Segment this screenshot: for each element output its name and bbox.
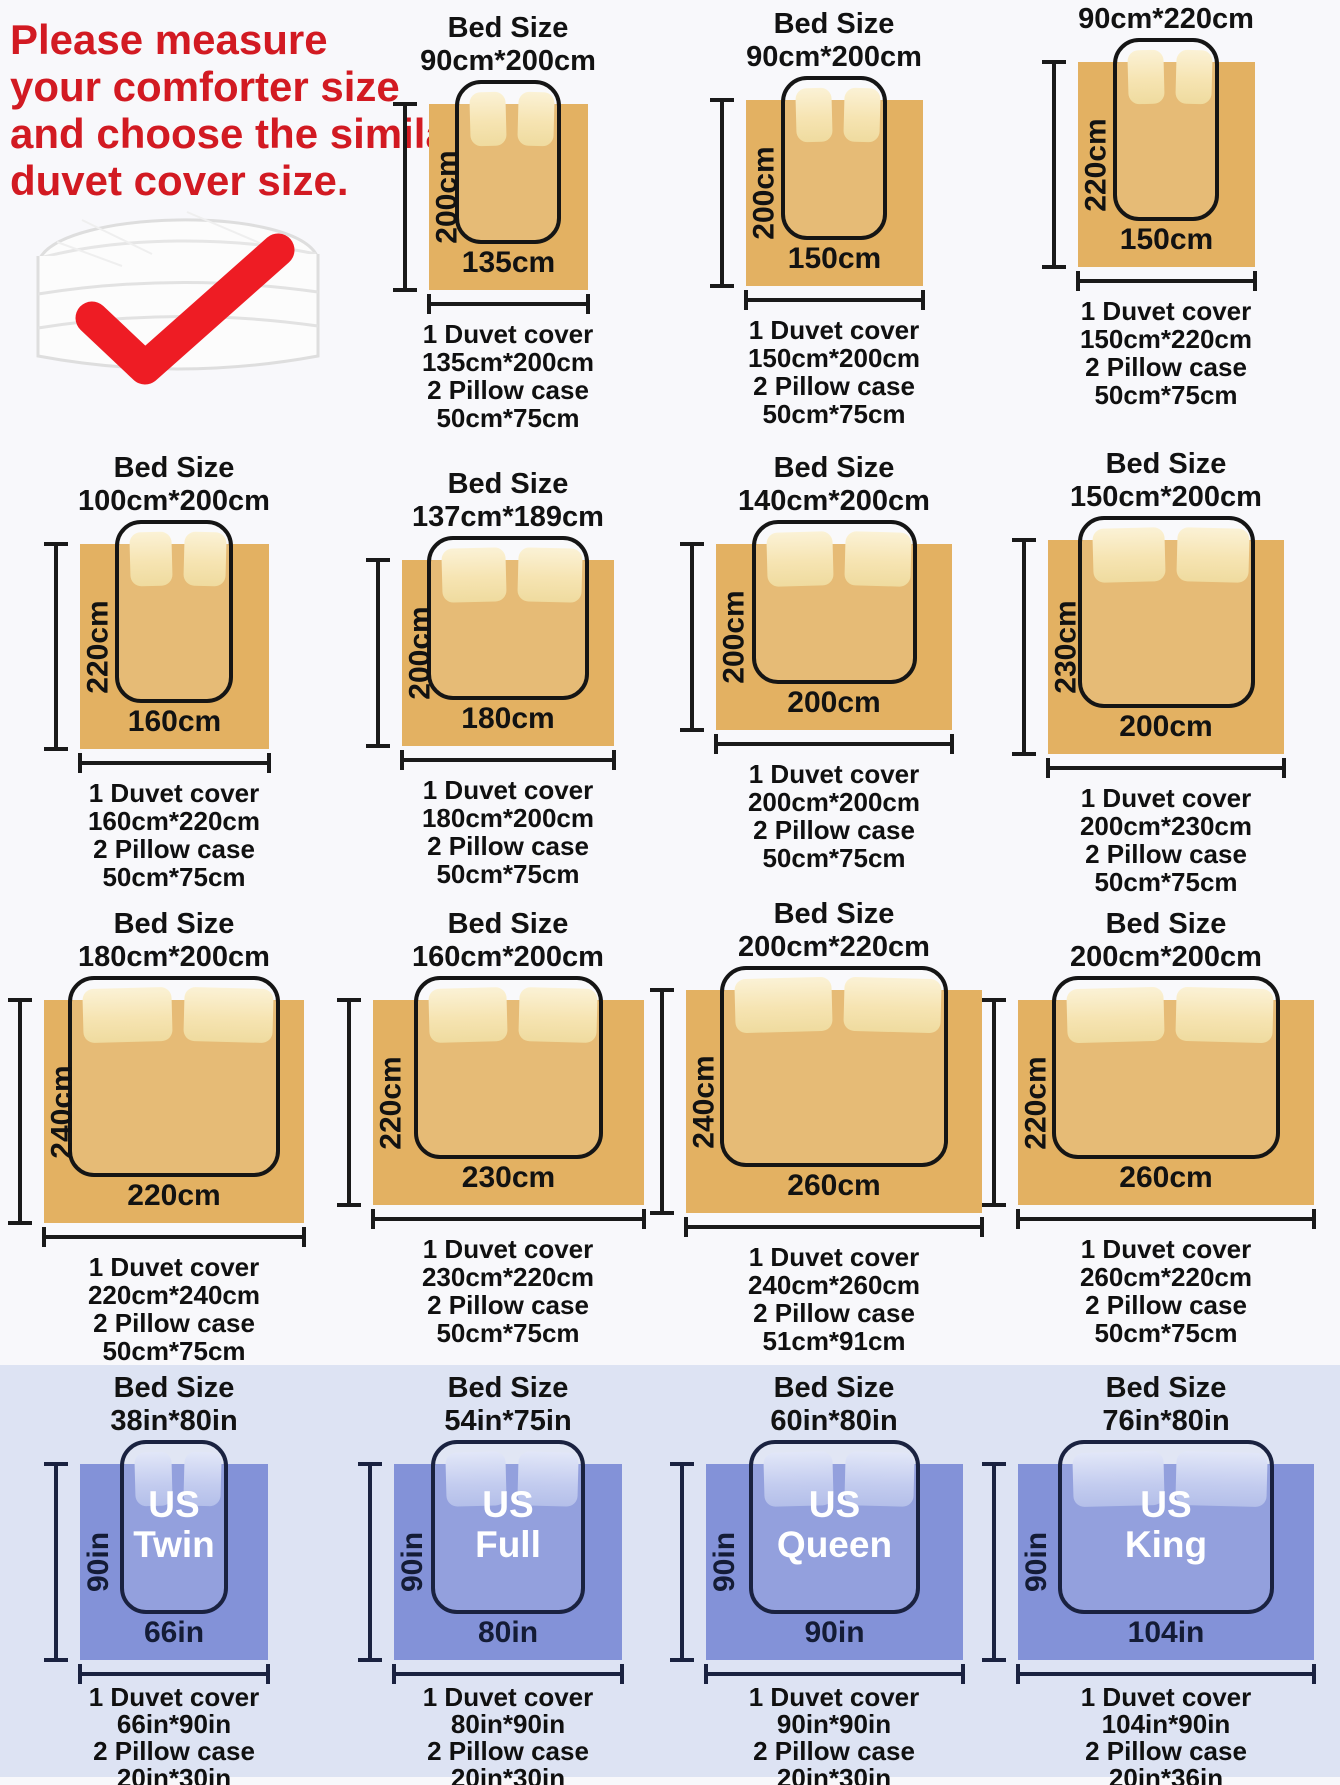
bed-size-title: Bed Size xyxy=(336,1372,680,1405)
description-line: 20in*30in xyxy=(2,1765,346,1785)
measure-cap xyxy=(680,728,704,732)
measure-cap xyxy=(8,998,32,1002)
pillow-icon xyxy=(428,987,507,1043)
description-line: 1 Duvet cover xyxy=(2,1253,346,1281)
height-measure-line xyxy=(1022,540,1026,754)
measure-cap xyxy=(366,744,390,748)
width-label: 135cm xyxy=(429,246,588,280)
bed-size-label: Bed Size38in*80in xyxy=(2,1372,346,1438)
height-measure-line xyxy=(18,1000,22,1223)
measure-cap xyxy=(1012,752,1036,756)
size-card-duvet-260x220: Bed Size200cm*200cm220cm260cm1 Duvet cov… xyxy=(994,908,1338,1365)
description-line: 1 Duvet cover xyxy=(994,1235,1338,1263)
description-line: 50cm*75cm xyxy=(2,1337,346,1365)
width-label: 90in xyxy=(706,1616,963,1650)
measure-cap xyxy=(650,1211,674,1215)
description-line: 50cm*75cm xyxy=(662,400,1006,428)
size-card-duvet-180x200: Bed Size137cm*189cm200cm180cm1 Duvet cov… xyxy=(336,468,680,906)
us-size-line: King xyxy=(1058,1525,1274,1565)
bed-size-title: Bed Size xyxy=(662,898,1006,931)
bed-outline xyxy=(1113,38,1219,221)
bed-outline xyxy=(68,976,280,1177)
description-line: 20in*30in xyxy=(662,1765,1006,1785)
width-measure-line xyxy=(427,302,590,306)
pillow-icon xyxy=(517,92,554,147)
width-measure-line xyxy=(1076,279,1257,283)
description-line: 66in*90in xyxy=(2,1711,346,1738)
bed-size-label: Bed Size76in*80in xyxy=(994,1372,1338,1438)
bed-outline xyxy=(781,76,887,240)
width-measure-line xyxy=(1016,1217,1316,1221)
duvet-description: 1 Duvet cover220cm*240cm2 Pillow case50c… xyxy=(2,1253,346,1365)
size-card-us-king: Bed Size76in*80inUSKing90in104in1 Duvet … xyxy=(994,1372,1338,1785)
width-label: 66in xyxy=(80,1616,268,1650)
bed-size-value: 200cm*200cm xyxy=(994,941,1338,974)
duvet-description: 1 Duvet cover230cm*220cm2 Pillow case50c… xyxy=(336,1235,680,1347)
bed-size-value: 90cm*220cm xyxy=(994,3,1338,36)
description-line: 1 Duvet cover xyxy=(994,784,1338,812)
us-size-line: US xyxy=(1058,1485,1274,1525)
measure-cap xyxy=(620,1664,624,1684)
duvet-description: 1 Duvet cover160cm*220cm2 Pillow case50c… xyxy=(2,779,346,891)
width-measure-line xyxy=(1016,1672,1316,1676)
measure-cap xyxy=(8,1221,32,1225)
description-line: 260cm*220cm xyxy=(994,1263,1338,1291)
bed-size-label: Bed Size100cm*200cm xyxy=(2,452,346,518)
height-measure-line xyxy=(368,1464,372,1660)
width-measure-line xyxy=(371,1217,646,1221)
bed-size-value: 54in*75in xyxy=(336,1405,680,1438)
measure-cap xyxy=(1282,758,1286,778)
bed-size-title: Bed Size xyxy=(2,908,346,941)
measure-cap xyxy=(392,1664,396,1684)
description-line: 50cm*75cm xyxy=(994,868,1338,896)
size-card-duvet-200x230: Bed Size150cm*200cm230cm200cm1 Duvet cov… xyxy=(994,448,1338,914)
us-size-line: US xyxy=(431,1485,585,1525)
height-measure-line xyxy=(347,1000,351,1205)
measure-cap xyxy=(1042,60,1066,64)
measure-cap xyxy=(612,750,616,770)
measure-cap xyxy=(704,1664,708,1684)
height-label-text: 220cm xyxy=(1020,1056,1054,1149)
bed-outline xyxy=(1052,976,1280,1159)
measure-cap xyxy=(42,1227,46,1247)
measure-cap xyxy=(714,734,718,754)
duvet-description: 1 Duvet cover150cm*220cm2 Pillow case50c… xyxy=(994,297,1338,409)
pillow-icon xyxy=(469,92,506,147)
size-card-duvet-160x220: Bed Size100cm*200cm220cm160cm1 Duvet cov… xyxy=(2,452,346,909)
measure-cap xyxy=(642,1209,646,1229)
description-line: 50cm*75cm xyxy=(336,860,680,888)
duvet-description: 1 Duvet cover104in*90in2 Pillow case20in… xyxy=(994,1684,1338,1785)
bed-outline xyxy=(752,520,917,684)
height-measure-line xyxy=(992,1000,996,1205)
bed-size-label: Bed Size90cm*200cm xyxy=(336,12,680,78)
bed-size-title: Bed Size xyxy=(994,908,1338,941)
description-line: 50cm*75cm xyxy=(2,863,346,891)
description-line: 1 Duvet cover xyxy=(662,316,1006,344)
description-line: 1 Duvet cover xyxy=(994,1684,1338,1711)
bed-size-title: Bed Size xyxy=(994,1372,1338,1405)
duvet-description: 1 Duvet cover150cm*200cm2 Pillow case50c… xyxy=(662,316,1006,428)
description-line: 1 Duvet cover xyxy=(2,1684,346,1711)
width-measure-line xyxy=(744,298,925,302)
description-line: 2 Pillow case xyxy=(336,832,680,860)
measure-cap xyxy=(980,1217,984,1237)
description-line: 2 Pillow case xyxy=(2,835,346,863)
measure-cap xyxy=(1312,1664,1316,1684)
description-line: 2 Pillow case xyxy=(662,816,1006,844)
us-size-name: USTwin xyxy=(120,1485,228,1565)
pillow-icon xyxy=(441,547,506,603)
measure-cap xyxy=(982,1203,1006,1207)
size-card-duvet-150x220: Bed Size90cm*220cm220cm150cm1 Duvet cove… xyxy=(994,0,1338,427)
height-measure-line xyxy=(54,1464,58,1660)
size-card-duvet-135x200: Bed Size90cm*200cm200cm135cm1 Duvet cove… xyxy=(336,12,680,450)
description-line: 2 Pillow case xyxy=(2,1309,346,1337)
description-line: 104in*90in xyxy=(994,1711,1338,1738)
height-label-text: 240cm xyxy=(688,1055,722,1148)
pillow-icon xyxy=(129,531,172,586)
duvet-description: 1 Duvet cover66in*90in2 Pillow case20in*… xyxy=(2,1684,346,1785)
height-measure-line xyxy=(720,100,724,286)
measure-cap xyxy=(670,1658,694,1662)
description-line: 50cm*75cm xyxy=(994,381,1338,409)
description-line: 2 Pillow case xyxy=(994,353,1338,381)
height-measure-line xyxy=(992,1464,996,1660)
width-label: 180cm xyxy=(402,702,614,736)
measure-cap xyxy=(44,1462,68,1466)
pillow-icon xyxy=(1127,50,1164,105)
bed-outline xyxy=(414,976,603,1159)
us-size-line: Queen xyxy=(749,1525,920,1565)
pillow-icon xyxy=(82,987,172,1043)
description-line: 150cm*200cm xyxy=(662,344,1006,372)
description-line: 50cm*75cm xyxy=(994,1319,1338,1347)
us-size-line: Twin xyxy=(120,1525,228,1565)
measure-cap xyxy=(267,753,271,773)
measure-cap xyxy=(1012,538,1036,542)
bed-size-value: 100cm*200cm xyxy=(2,485,346,518)
pillow-icon xyxy=(843,977,941,1034)
measure-cap xyxy=(982,1462,1006,1466)
height-label-text: 200cm xyxy=(404,606,438,699)
measure-cap xyxy=(44,747,68,751)
description-line: 2 Pillow case xyxy=(994,1738,1338,1765)
bed-size-label: Bed Size160cm*200cm xyxy=(336,908,680,974)
measure-cap xyxy=(1016,1209,1020,1229)
us-size-line: Full xyxy=(431,1525,585,1565)
us-size-line: US xyxy=(749,1485,920,1525)
height-measure-line xyxy=(680,1464,684,1660)
width-measure-line xyxy=(704,1672,965,1676)
measure-cap xyxy=(1016,1664,1020,1684)
description-line: 1 Duvet cover xyxy=(336,320,680,348)
description-line: 20in*36in xyxy=(994,1765,1338,1785)
pillow-icon xyxy=(795,88,832,143)
measure-cap xyxy=(1253,271,1257,291)
width-measure-line xyxy=(42,1235,306,1239)
bed-size-value: 90cm*200cm xyxy=(662,41,1006,74)
us-size-name: USKing xyxy=(1058,1485,1274,1565)
size-card-us-full: Bed Size54in*75inUSFull90in80in1 Duvet c… xyxy=(336,1372,680,1785)
bed-outline xyxy=(720,966,948,1167)
measure-cap xyxy=(427,294,431,314)
bed-size-value: 137cm*189cm xyxy=(336,501,680,534)
bed-size-label: Bed Size200cm*200cm xyxy=(994,908,1338,974)
description-line: 2 Pillow case xyxy=(336,376,680,404)
bed-size-label: Bed Size137cm*189cm xyxy=(336,468,680,534)
bed-size-title: Bed Size xyxy=(336,12,680,45)
description-line: 80in*90in xyxy=(336,1711,680,1738)
measure-cap xyxy=(366,558,390,562)
width-measure-line xyxy=(684,1225,984,1229)
measure-cap xyxy=(400,750,404,770)
measure-cap xyxy=(266,1664,270,1684)
pillow-icon xyxy=(1066,987,1164,1044)
height-label-text: 220cm xyxy=(1080,118,1114,211)
measure-cap xyxy=(710,284,734,288)
bed-size-title: Bed Size xyxy=(2,452,346,485)
size-card-us-twin: Bed Size38in*80inUSTwin90in66in1 Duvet c… xyxy=(2,1372,346,1785)
pillow-icon xyxy=(734,977,832,1034)
measure-cap xyxy=(393,102,417,106)
pillow-icon xyxy=(1175,987,1273,1044)
measure-cap xyxy=(302,1227,306,1247)
bed-outline xyxy=(455,80,561,244)
measure-cap xyxy=(393,288,417,292)
height-measure-line xyxy=(54,544,58,749)
width-label: 200cm xyxy=(716,686,952,720)
pillow-icon xyxy=(1175,50,1212,105)
measure-cap xyxy=(650,988,674,992)
pillow-icon xyxy=(517,547,582,603)
bed-size-title: Bed Size xyxy=(2,1372,346,1405)
measure-cap xyxy=(78,1664,82,1684)
width-label: 260cm xyxy=(1018,1161,1314,1195)
measure-cap xyxy=(680,542,704,546)
bed-size-label: Bed Size150cm*200cm xyxy=(994,448,1338,514)
bed-size-title: Bed Size xyxy=(336,908,680,941)
pillow-icon xyxy=(183,987,273,1043)
description-line: 180cm*200cm xyxy=(336,804,680,832)
measure-cap xyxy=(358,1658,382,1662)
bed-size-label: Bed Size90cm*200cm xyxy=(662,8,1006,74)
size-card-duvet-220x240: Bed Size180cm*200cm240cm220cm1 Duvet cov… xyxy=(2,908,346,1383)
description-line: 90in*90in xyxy=(662,1711,1006,1738)
measure-cap xyxy=(921,290,925,310)
size-card-duvet-150x200: Bed Size90cm*200cm200cm150cm1 Duvet cove… xyxy=(662,8,1006,446)
bed-size-value: 160cm*200cm xyxy=(336,941,680,974)
height-measure-line xyxy=(376,560,380,746)
bed-outline xyxy=(115,520,233,703)
measure-cap xyxy=(1046,758,1050,778)
description-line: 2 Pillow case xyxy=(994,1291,1338,1319)
duvet-description: 1 Duvet cover135cm*200cm2 Pillow case50c… xyxy=(336,320,680,432)
pillow-icon xyxy=(844,531,911,587)
size-card-us-queen: Bed Size60in*80inUSQueen90in90in1 Duvet … xyxy=(662,1372,1006,1785)
height-label-text: 230cm xyxy=(1050,600,1084,693)
width-label: 160cm xyxy=(80,705,269,739)
bed-size-value: 180cm*200cm xyxy=(2,941,346,974)
width-label: 104in xyxy=(1018,1616,1314,1650)
description-line: 200cm*200cm xyxy=(662,788,1006,816)
width-label: 220cm xyxy=(44,1179,304,1213)
description-line: 2 Pillow case xyxy=(336,1738,680,1765)
bed-size-value: 76in*80in xyxy=(994,1405,1338,1438)
height-label-text: 220cm xyxy=(82,600,116,693)
description-line: 2 Pillow case xyxy=(662,372,1006,400)
duvet-description: 1 Duvet cover180cm*200cm2 Pillow case50c… xyxy=(336,776,680,888)
measure-cap xyxy=(358,1462,382,1466)
width-measure-line xyxy=(392,1672,624,1676)
measure-cap xyxy=(982,1658,1006,1662)
bed-size-value: 140cm*200cm xyxy=(662,485,1006,518)
measure-cap xyxy=(950,734,954,754)
description-line: 240cm*260cm xyxy=(662,1271,1006,1299)
bed-size-title: Bed Size xyxy=(662,8,1006,41)
description-line: 1 Duvet cover xyxy=(662,1243,1006,1271)
pillow-icon xyxy=(183,531,226,586)
bed-size-label: Bed Size200cm*220cm xyxy=(662,898,1006,964)
width-label: 80in xyxy=(394,1616,622,1650)
measure-cap xyxy=(44,542,68,546)
description-line: 50cm*75cm xyxy=(662,844,1006,872)
description-line: 200cm*230cm xyxy=(994,812,1338,840)
measure-cap xyxy=(337,998,361,1002)
size-card-duvet-200x200: Bed Size140cm*200cm200cm200cm1 Duvet cov… xyxy=(662,452,1006,890)
description-line: 220cm*240cm xyxy=(2,1281,346,1309)
bed-size-title: Bed Size xyxy=(662,452,1006,485)
pillow-icon xyxy=(1176,527,1249,583)
bed-size-value: 60in*80in xyxy=(662,1405,1006,1438)
description-line: 51cm*91cm xyxy=(662,1327,1006,1355)
height-measure-line xyxy=(1052,62,1056,267)
height-label-text: 200cm xyxy=(718,590,752,683)
size-card-duvet-240x260: Bed Size200cm*220cm240cm260cm1 Duvet cov… xyxy=(662,898,1006,1373)
height-label-text: 90in xyxy=(82,1532,116,1592)
description-line: 2 Pillow case xyxy=(994,840,1338,868)
pillow-icon xyxy=(766,531,833,587)
measure-cap xyxy=(1312,1209,1316,1229)
height-label-text: 220cm xyxy=(375,1056,409,1149)
duvet-description: 1 Duvet cover260cm*220cm2 Pillow case50c… xyxy=(994,1235,1338,1347)
bed-size-label: Bed Size140cm*200cm xyxy=(662,452,1006,518)
description-line: 2 Pillow case xyxy=(336,1291,680,1319)
pillow-icon xyxy=(843,88,880,143)
description-line: 2 Pillow case xyxy=(2,1738,346,1765)
description-line: 2 Pillow case xyxy=(662,1299,1006,1327)
comforter-image xyxy=(12,196,342,401)
description-line: 20in*30in xyxy=(336,1765,680,1785)
description-line: 2 Pillow case xyxy=(662,1738,1006,1765)
measure-cap xyxy=(371,1209,375,1229)
us-size-name: USQueen xyxy=(749,1485,920,1565)
measure-cap xyxy=(670,1462,694,1466)
bed-size-label: Bed Size180cm*200cm xyxy=(2,908,346,974)
measure-cap xyxy=(710,98,734,102)
description-line: 1 Duvet cover xyxy=(336,1235,680,1263)
measure-cap xyxy=(961,1664,965,1684)
height-measure-line xyxy=(403,104,407,290)
bed-size-value: 200cm*220cm xyxy=(662,931,1006,964)
width-measure-line xyxy=(1046,766,1286,770)
width-label: 260cm xyxy=(686,1169,982,1203)
bed-size-value: 38in*80in xyxy=(2,1405,346,1438)
us-size-name: USFull xyxy=(431,1485,585,1565)
width-label: 150cm xyxy=(1078,223,1255,257)
height-measure-line xyxy=(690,544,694,730)
measure-cap xyxy=(337,1203,361,1207)
description-line: 50cm*75cm xyxy=(336,1319,680,1347)
height-label-text: 90in xyxy=(1020,1532,1054,1592)
width-measure-line xyxy=(78,1672,270,1676)
duvet-description: 1 Duvet cover80in*90in2 Pillow case20in*… xyxy=(336,1684,680,1785)
description-line: 160cm*220cm xyxy=(2,807,346,835)
bed-size-label: Bed Size54in*75in xyxy=(336,1372,680,1438)
measure-cap xyxy=(684,1217,688,1237)
description-line: 1 Duvet cover xyxy=(662,1684,1006,1711)
pillow-icon xyxy=(1092,527,1165,583)
width-measure-line xyxy=(714,742,954,746)
duvet-description: 1 Duvet cover200cm*200cm2 Pillow case50c… xyxy=(662,760,1006,872)
description-line: 1 Duvet cover xyxy=(336,1684,680,1711)
description-line: 1 Duvet cover xyxy=(2,779,346,807)
description-line: 50cm*75cm xyxy=(336,404,680,432)
measure-cap xyxy=(982,998,1006,1002)
height-label-text: 200cm xyxy=(748,146,782,239)
size-card-duvet-230x220: Bed Size160cm*200cm220cm230cm1 Duvet cov… xyxy=(336,908,680,1365)
measure-cap xyxy=(1076,271,1080,291)
height-label-text: 240cm xyxy=(46,1065,80,1158)
size-chart-page: Please measure your comforter size and c… xyxy=(0,0,1340,1785)
duvet-description: 1 Duvet cover240cm*260cm2 Pillow case51c… xyxy=(662,1243,1006,1355)
width-measure-line xyxy=(78,761,271,765)
height-measure-line xyxy=(660,990,664,1213)
bed-size-value: 90cm*200cm xyxy=(336,45,680,78)
pillow-icon xyxy=(518,987,597,1043)
bed-size-title: Bed Size xyxy=(662,1372,1006,1405)
duvet-description: 1 Duvet cover90in*90in2 Pillow case20in*… xyxy=(662,1684,1006,1785)
width-label: 150cm xyxy=(746,242,923,276)
width-label: 200cm xyxy=(1048,710,1284,744)
description-line: 1 Duvet cover xyxy=(662,760,1006,788)
description-line: 1 Duvet cover xyxy=(994,297,1338,325)
measure-cap xyxy=(78,753,82,773)
measure-cap xyxy=(1042,265,1066,269)
us-size-line: US xyxy=(120,1485,228,1525)
bed-outline xyxy=(427,536,589,700)
width-measure-line xyxy=(400,758,616,762)
description-line: 135cm*200cm xyxy=(336,348,680,376)
bed-size-label: Bed Size60in*80in xyxy=(662,1372,1006,1438)
duvet-description: 1 Duvet cover200cm*230cm2 Pillow case50c… xyxy=(994,784,1338,896)
bed-size-title: Bed Size xyxy=(994,448,1338,481)
bed-size-label: Bed Size90cm*220cm xyxy=(994,0,1338,36)
description-line: 230cm*220cm xyxy=(336,1263,680,1291)
measure-cap xyxy=(744,290,748,310)
height-label-text: 90in xyxy=(708,1532,742,1592)
bed-size-title: Bed Size xyxy=(336,468,680,501)
description-line: 150cm*220cm xyxy=(994,325,1338,353)
bed-size-value: 150cm*200cm xyxy=(994,481,1338,514)
measure-cap xyxy=(44,1658,68,1662)
height-label-text: 90in xyxy=(396,1532,430,1592)
width-label: 230cm xyxy=(373,1161,644,1195)
bed-outline xyxy=(1078,516,1255,708)
height-label-text: 200cm xyxy=(431,150,465,243)
measure-cap xyxy=(586,294,590,314)
